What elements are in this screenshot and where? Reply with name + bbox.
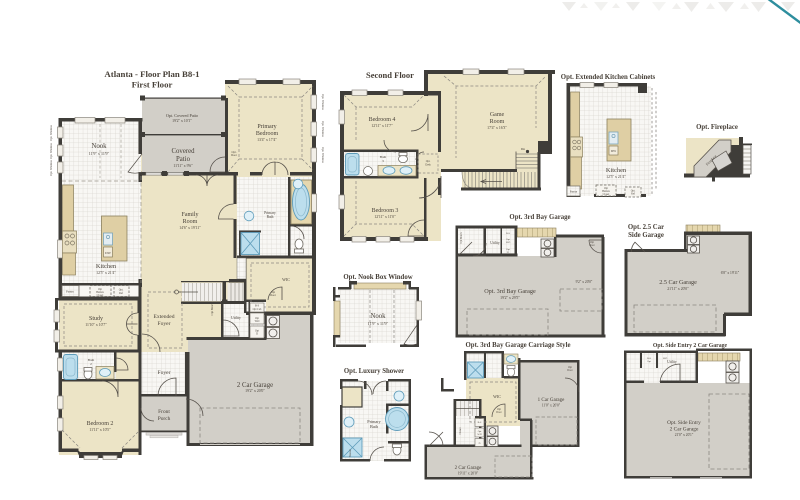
svg-text:Pantry: Pantry [66,290,74,294]
svg-text:Bedroom 4: Bedroom 4 [369,117,396,123]
svg-text:Kitchen: Kitchen [606,167,627,174]
svg-text:Opt. Side Entry: Opt. Side Entry [667,420,701,426]
svg-text:Opt. 3rd Bay Garage Carriage S: Opt. 3rd Bay Garage Carriage Style [466,342,571,349]
svg-text:Door: Door [567,369,572,372]
svg-text:Closet: Closet [603,193,610,196]
svg-text:12'11" x 11'7": 12'11" x 11'7" [371,124,393,128]
svg-text:Opt. Nook Box Window: Opt. Nook Box Window [343,274,412,281]
svg-text:Family: Family [181,212,198,218]
svg-text:11'11" x 10'5": 11'11" x 10'5" [89,428,111,432]
svg-text:19'11" x 20'0": 19'11" x 20'0" [458,472,479,476]
svg-text:12'5" x 21'4": 12'5" x 21'4" [606,175,626,179]
svg-text:Kitchen: Kitchen [96,263,117,270]
svg-text:Opt. 3rd Bay Garage: Opt. 3rd Bay Garage [484,288,536,295]
svg-text:Bath: Bath [370,424,379,429]
svg-text:Ref: Ref [119,292,123,295]
svg-text:Opt. Covered Patio: Opt. Covered Patio [166,113,198,118]
svg-text:11'10" x 10'7": 11'10" x 10'7" [85,323,107,327]
svg-text:Opt. Side Entry 2 Car Garage: Opt. Side Entry 2 Car Garage [653,343,728,349]
svg-text:Bedroom 3: Bedroom 3 [372,208,399,214]
svg-text:Room: Room [183,219,198,225]
svg-text:19'2" x 20'0": 19'2" x 20'0" [245,389,265,393]
svg-text:D: D [256,333,258,336]
svg-text:1 Car Garage: 1 Car Garage [538,398,565,403]
svg-text:9'2" x 20'0": 9'2" x 20'0" [576,280,593,284]
svg-text:WIC: WIC [282,277,290,282]
svg-text:Opt Bench: Opt Bench [460,232,463,244]
svg-text:W.D: W.D [477,433,482,436]
svg-text:Primary: Primary [257,124,276,130]
svg-text:Patio: Patio [176,156,191,163]
svg-text:Opt. Fireplace: Opt. Fireplace [696,124,738,131]
svg-text:D: D [479,442,481,445]
svg-text:Bath: Bath [267,215,274,219]
svg-text:Side Garage: Side Garage [628,232,664,239]
svg-text:Opt. Extended Kitchen Cabinets: Opt. Extended Kitchen Cabinets [561,74,656,81]
svg-text:14'6" x 19'11": 14'6" x 19'11" [179,226,201,230]
svg-text:First Floor: First Floor [132,80,173,90]
svg-text:6'8" x 19'11": 6'8" x 19'11" [721,271,740,275]
svg-text:11'9" x 11'9": 11'9" x 11'9" [89,151,110,156]
svg-text:Foyer: Foyer [157,370,170,376]
svg-text:12'11" x 11'0": 12'11" x 11'0" [374,215,396,219]
svg-text:2 Car Garage: 2 Car Garage [455,466,482,471]
svg-text:Nook: Nook [91,143,107,150]
svg-text:W.D: W.D [663,357,668,360]
svg-text:Foyer: Foyer [157,321,170,327]
svg-text:Opt. Window: Opt. Window [49,124,53,141]
svg-text:Opt. 2.5 Car: Opt. 2.5 Car [628,224,664,231]
svg-text:Desk: Desk [425,164,431,167]
svg-text:11'9" x 11'9": 11'9" x 11'9" [368,321,389,326]
svg-text:19'2" x 29'5": 19'2" x 29'5" [500,296,520,300]
svg-text:Opt. 3rd Bay Garage: Opt. 3rd Bay Garage [509,214,570,221]
svg-text:Closet: Closet [97,294,104,297]
svg-text:11'11" x 9'6": 11'11" x 9'6" [173,164,193,168]
svg-text:Opt. Window: Opt. Window [49,159,53,176]
svg-text:W.D: W.D [506,241,511,244]
svg-text:Door: Door [270,294,276,297]
svg-text:12'5" x 21'4": 12'5" x 21'4" [96,271,116,275]
svg-text:Dn: Dn [521,147,525,151]
svg-text:Nook: Nook [370,313,386,320]
svg-text:Ref: Ref [631,193,635,196]
svg-text:Opt. Window: Opt. Window [321,147,325,164]
svg-text:21'0" x 20'1": 21'0" x 20'1" [675,433,694,437]
svg-text:Shower: Shower [349,449,352,457]
svg-text:2.5 Car Garage: 2.5 Car Garage [659,279,697,286]
svg-text:11'0" x 20'0": 11'0" x 20'0" [542,404,561,408]
svg-text:Pantry: Pantry [570,191,578,194]
svg-text:13'4" x 17'4": 13'4" x 17'4" [257,138,277,142]
svg-text:2: 2 [90,362,92,366]
svg-text:Opt Cab: Opt Cab [253,308,262,311]
svg-text:Utility: Utility [231,316,241,320]
svg-text:Door: Door [496,411,501,414]
svg-text:Bedroom: Bedroom [256,131,279,137]
svg-text:Front: Front [158,409,170,415]
svg-text:Opt. Window: Opt. Window [321,121,325,138]
svg-text:DW: DW [105,251,111,255]
svg-text:Bedroom 2: Bedroom 2 [87,421,114,427]
svg-text:DW: DW [611,149,616,153]
svg-text:Opt. Luxury Shower: Opt. Luxury Shower [344,368,404,375]
svg-text:Room: Room [490,119,505,125]
svg-text:Study: Study [89,316,103,322]
svg-text:2 Car Garage: 2 Car Garage [670,427,699,433]
svg-text:17'4" x 16'3": 17'4" x 16'3" [487,126,507,130]
svg-text:Door: Door [231,154,237,157]
svg-text:Atlanta - Floor Plan B8-1: Atlanta - Floor Plan B8-1 [104,69,199,79]
svg-text:Opt. Window: Opt. Window [49,142,53,159]
svg-text:Door: Door [589,244,594,247]
svg-text:Second Floor: Second Floor [366,70,414,80]
svg-text:Opt. Window: Opt. Window [321,94,325,111]
svg-text:WIC: WIC [493,394,501,399]
svg-text:19'2" x 10'1": 19'2" x 10'1" [172,119,192,123]
svg-text:21'11" x 20'0": 21'11" x 20'0" [667,287,689,291]
svg-text:Closet: Closet [459,427,462,434]
svg-text:B-S: B-S [478,421,482,424]
svg-text:D: D [507,251,509,254]
svg-text:Opt Bench: Opt Bench [210,302,214,315]
svg-text:Game: Game [490,112,505,118]
svg-text:B-S: B-S [506,232,510,235]
svg-text:W.D: W.D [255,320,260,323]
svg-text:Utility: Utility [667,360,677,364]
svg-text:Extended: Extended [153,314,174,320]
svg-text:Porch: Porch [158,416,171,422]
svg-text:3: 3 [382,159,384,163]
svg-text:Covered: Covered [171,148,195,155]
svg-text:2 Car Garage: 2 Car Garage [237,382,273,389]
svg-text:Utility: Utility [490,241,500,245]
svg-text:Opt: Opt [647,360,651,363]
